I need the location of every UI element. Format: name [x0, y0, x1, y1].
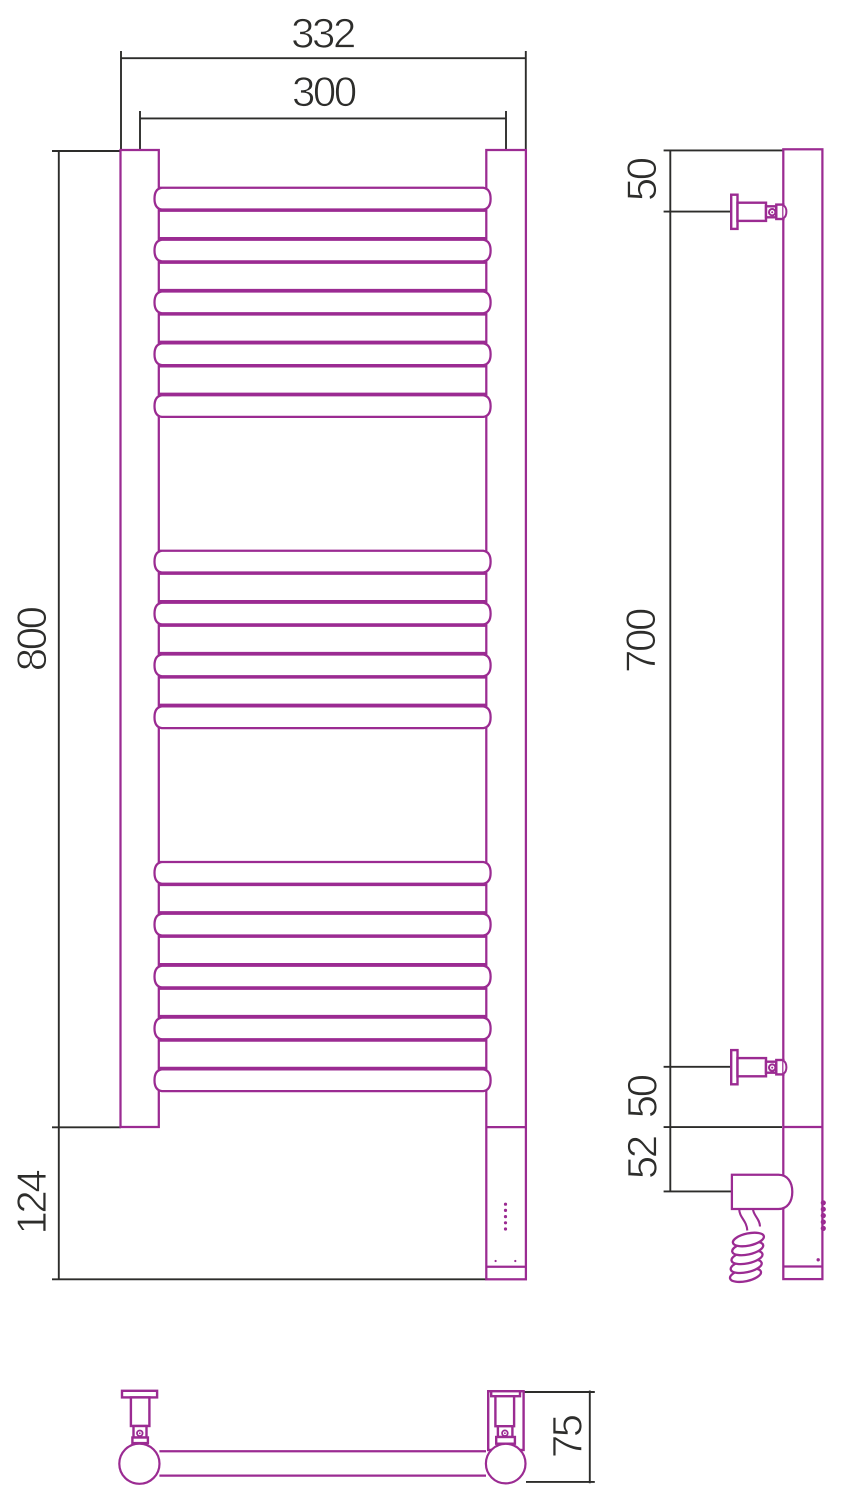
svg-text:300: 300	[292, 68, 356, 115]
svg-text:124: 124	[8, 1170, 55, 1235]
svg-text:52: 52	[618, 1136, 665, 1179]
svg-text:75: 75	[543, 1415, 590, 1458]
svg-text:332: 332	[291, 10, 355, 57]
svg-text:800: 800	[8, 607, 55, 671]
svg-text:50: 50	[618, 158, 665, 201]
svg-text:700: 700	[617, 609, 664, 673]
svg-text:50: 50	[618, 1075, 665, 1118]
